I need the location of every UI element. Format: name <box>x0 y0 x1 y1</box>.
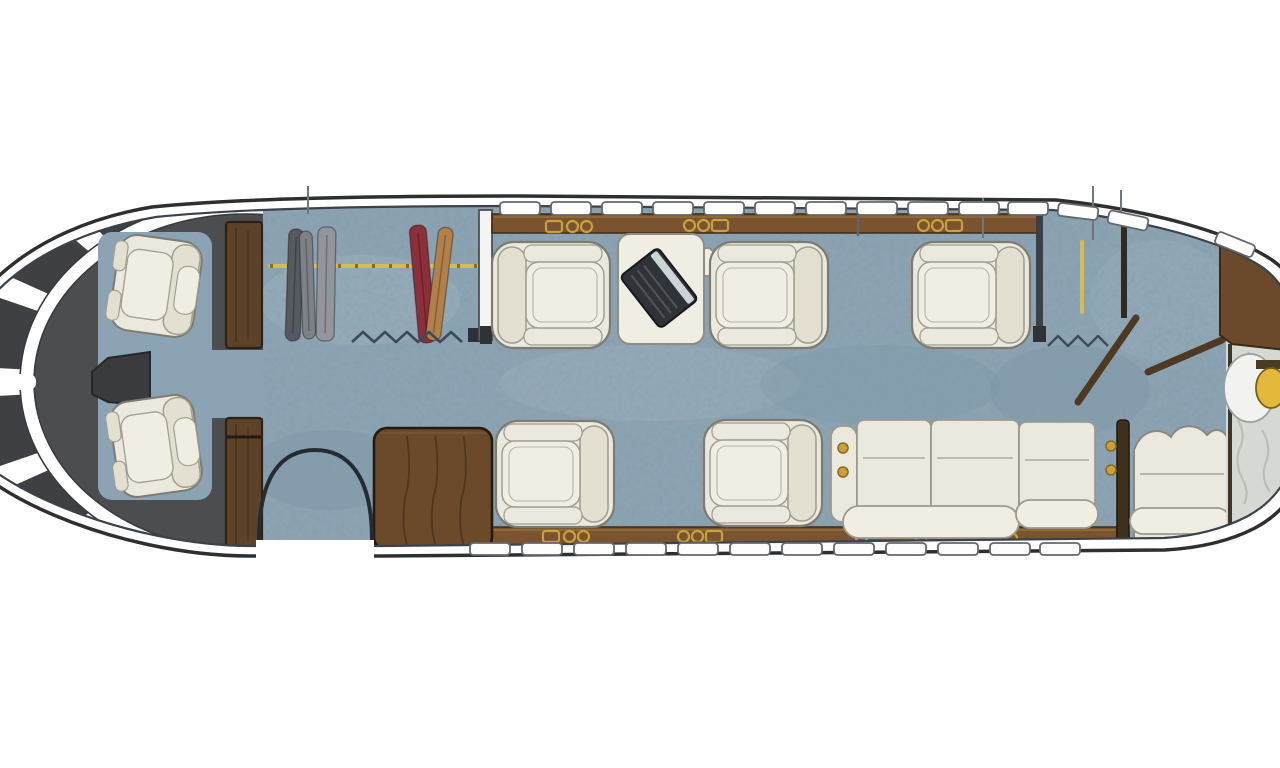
seat-back <box>788 425 816 521</box>
cockpit-carpet-1 <box>205 350 265 418</box>
seat-bolster-top <box>920 245 998 262</box>
windshield-center-post <box>0 374 36 390</box>
seat-bolster-bottom <box>504 507 582 524</box>
divan-front-bolster <box>843 506 1019 538</box>
seat-bolster-bottom <box>524 328 602 345</box>
seat-cushion <box>710 440 788 506</box>
divan-cushion-1 <box>857 420 931 512</box>
window-top-8 <box>857 202 897 215</box>
window-bottom-10 <box>938 543 978 555</box>
entry-door-opening <box>256 540 374 576</box>
passenger-seat-2 <box>710 242 828 348</box>
partition-foot <box>1033 326 1046 342</box>
closet-partition-wall <box>479 210 492 340</box>
window-bottom-6 <box>730 543 770 555</box>
window-top-9 <box>908 202 948 215</box>
window-top-2 <box>551 202 591 215</box>
seat-bolster-top <box>504 424 582 441</box>
cabinet-body <box>226 222 262 348</box>
gold-sink <box>1256 368 1280 408</box>
seat-back <box>580 426 608 522</box>
seat-back <box>498 247 526 343</box>
seat-bolster-bottom <box>712 506 790 523</box>
seat-bolster-bottom <box>920 328 998 345</box>
passenger-seat-4 <box>496 421 614 527</box>
window-top-1 <box>500 202 540 215</box>
window-bottom-8 <box>834 543 874 555</box>
passenger-seat-3 <box>912 242 1030 348</box>
window-top-5 <box>704 202 744 215</box>
credenza <box>374 428 492 550</box>
window-bottom-1 <box>470 543 510 555</box>
seat-bolster-top <box>712 423 790 440</box>
seat-cushion <box>716 262 794 328</box>
window-top-10 <box>959 202 999 215</box>
garment-3 <box>316 227 336 341</box>
window-bottom-2 <box>522 543 562 555</box>
seat-cushion <box>918 262 996 328</box>
window-top-7 <box>806 202 846 215</box>
seat-back <box>996 247 1024 343</box>
partition-foot <box>480 326 492 344</box>
gold-fitting <box>838 467 848 477</box>
divan <box>831 420 1098 538</box>
cabin-floorplan-page <box>0 0 1280 768</box>
cabin-floorplan-image <box>0 0 1280 768</box>
divan-cushion-3 <box>1019 422 1095 508</box>
window-top-6 <box>755 202 795 215</box>
crew-seat-2 <box>104 393 205 500</box>
divan-cushion-2 <box>931 420 1019 512</box>
crew-seat-1 <box>104 232 205 339</box>
gold-fitting <box>1106 441 1116 451</box>
gold-fitting <box>1106 465 1116 475</box>
aft-bench-seat <box>1130 426 1230 540</box>
aft-partition <box>1117 420 1129 546</box>
window-bottom-3 <box>574 543 614 555</box>
window-top-4 <box>653 202 693 215</box>
seat-cushion <box>502 441 580 507</box>
window-top-3 <box>602 202 642 215</box>
bulkhead-cabinet-bottom <box>226 418 262 550</box>
divan-front-bolster <box>1016 500 1098 528</box>
passenger-seat-1 <box>492 242 610 348</box>
seat-cushion <box>526 262 604 328</box>
window-bottom-7 <box>782 543 822 555</box>
window-top-11 <box>1008 202 1048 215</box>
passenger-seat-5 <box>704 420 822 526</box>
window-bottom-9 <box>886 543 926 555</box>
seat-bolster-top <box>718 245 796 262</box>
window-bottom-11 <box>990 543 1030 555</box>
aft-partition-wall <box>1036 212 1043 340</box>
gold-fitting <box>838 443 848 453</box>
crew-seat-cushion <box>120 410 175 484</box>
seat-bolster-top <box>524 245 602 262</box>
crew-seat-cushion <box>120 248 175 322</box>
aft-doorway-wall <box>1121 214 1127 318</box>
seat-bolster-bottom <box>718 328 796 345</box>
seat-back <box>794 247 822 343</box>
window-bottom-12 <box>1040 543 1080 555</box>
bulkhead-cabinet-top <box>226 222 262 348</box>
window-bottom-4 <box>626 543 666 555</box>
window-bottom-5 <box>678 543 718 555</box>
